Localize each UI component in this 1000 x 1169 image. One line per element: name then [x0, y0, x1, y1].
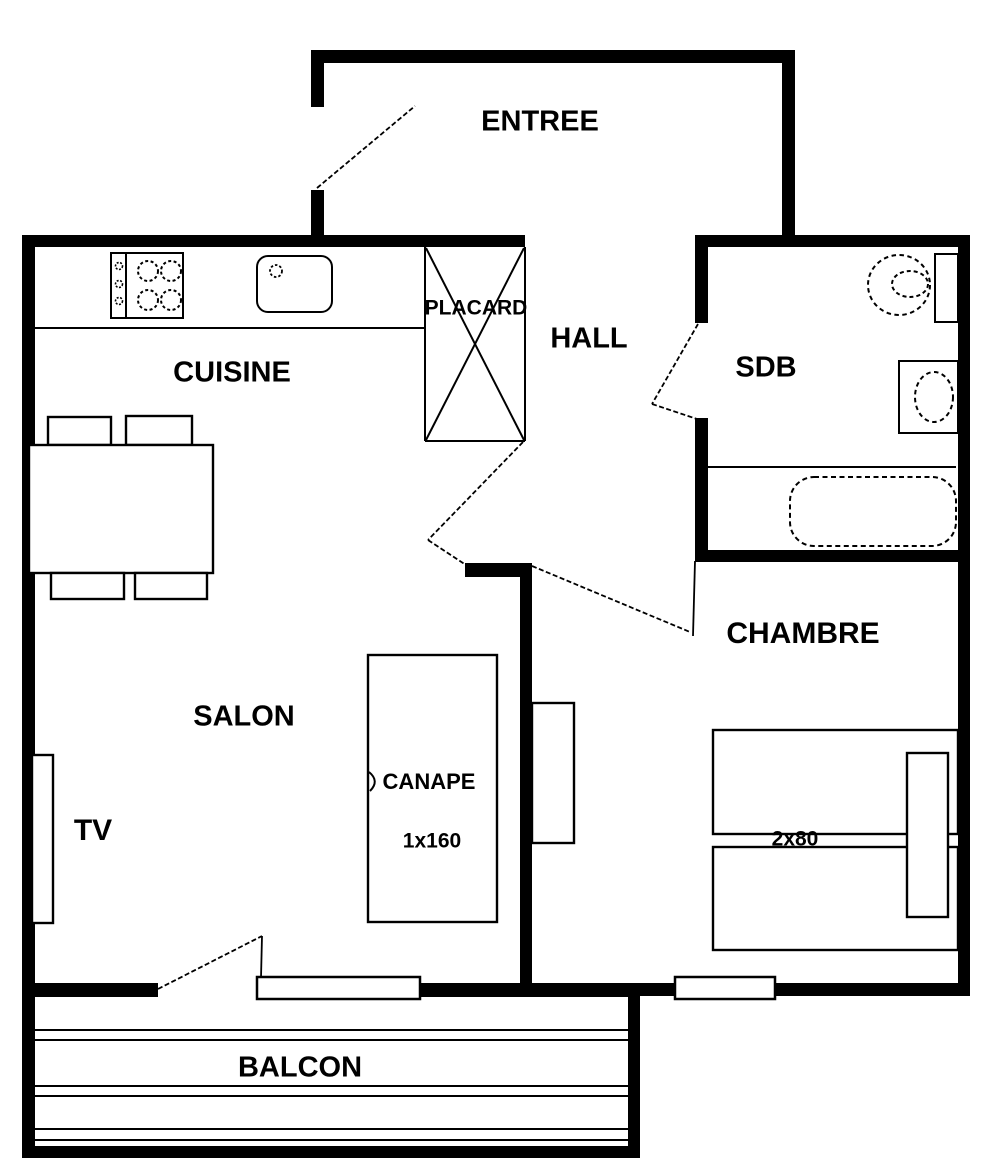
tv-unit — [32, 755, 53, 923]
wall-chambre-bottom-right — [775, 983, 970, 996]
room-label-entree: ENTREE — [481, 108, 599, 137]
dining-table — [29, 445, 213, 573]
wall-entry-left-lower — [311, 190, 324, 247]
floor-plan-drawing — [0, 0, 1000, 1169]
room-label-balcon: BALCON — [238, 1054, 362, 1083]
chambre-door-leaf — [693, 561, 695, 636]
wall-entree-right — [782, 50, 795, 247]
wall-salon-bottom-right — [420, 983, 640, 997]
washbasin-icon — [899, 361, 958, 433]
wall-balcony-bottom — [22, 1146, 640, 1158]
wall-salon-bottom-left — [22, 983, 158, 997]
wall-entree-top — [311, 50, 795, 63]
chambre-door-swing — [532, 566, 690, 632]
sdb-door-swing — [652, 404, 697, 419]
label-tv: TV — [74, 816, 112, 846]
room-label-salon: SALON — [193, 703, 295, 732]
sdb-door-leaf — [652, 324, 698, 404]
wall-sdb-bottom — [695, 550, 970, 562]
salon-window — [257, 977, 420, 999]
bed-headboard — [907, 753, 948, 917]
room-label-chambre: CHAMBRE — [726, 619, 879, 649]
placard-closet — [425, 247, 525, 441]
chambre-window — [675, 977, 775, 999]
wall-kitchen-top — [22, 235, 525, 247]
chair-top-2 — [126, 416, 192, 445]
chair-bottom-1 — [51, 573, 124, 599]
room-label-hall: HALL — [550, 325, 627, 354]
toilet-bowl-inner — [892, 271, 928, 297]
wall-balcony-right — [628, 983, 640, 1158]
wardrobe — [532, 703, 574, 843]
wall-salon-chambre — [520, 563, 532, 996]
stove-icon — [111, 253, 183, 318]
bathroom-fixtures — [708, 254, 958, 546]
floor-plan: ENTREE CUISINE PLACARD HALL SDB SALON CH… — [0, 0, 1000, 1169]
balcony-door-leaf — [158, 936, 262, 989]
chair-bottom-2 — [135, 573, 207, 599]
salon-door-swing — [428, 540, 466, 565]
wall-chambre-bottom-left — [640, 983, 675, 996]
bathtub-icon — [790, 477, 956, 546]
salon-door-leaf — [428, 442, 523, 540]
chair-top-1 — [48, 417, 111, 445]
balcony-railing — [35, 1030, 628, 1140]
room-label-placard: PLACARD — [425, 298, 528, 319]
balcony-door-jamb — [261, 936, 262, 978]
room-label-sdb: SDB — [735, 354, 796, 383]
tv-icon — [32, 755, 53, 923]
label-beds-size: 2x80 — [772, 829, 819, 850]
kitchen-sink-icon — [257, 256, 332, 312]
dining-table-set — [29, 416, 213, 599]
label-canape-size: 1x160 — [403, 831, 461, 852]
toilet-icon — [868, 255, 930, 315]
label-canape: CANAPE — [383, 771, 476, 793]
room-label-cuisine: CUISINE — [173, 359, 291, 388]
toilet-tank — [935, 254, 958, 322]
walls — [22, 50, 970, 1158]
wall-right — [958, 235, 970, 996]
wall-sdb-left-lower — [695, 418, 708, 562]
bedroom-furniture — [532, 703, 958, 950]
wall-sdb-left-upper — [695, 235, 708, 323]
entry-door-leaf — [317, 106, 415, 188]
wall-left — [22, 235, 35, 1158]
kitchen-sink-basin — [257, 256, 332, 312]
wall-sdb-top — [697, 235, 970, 247]
